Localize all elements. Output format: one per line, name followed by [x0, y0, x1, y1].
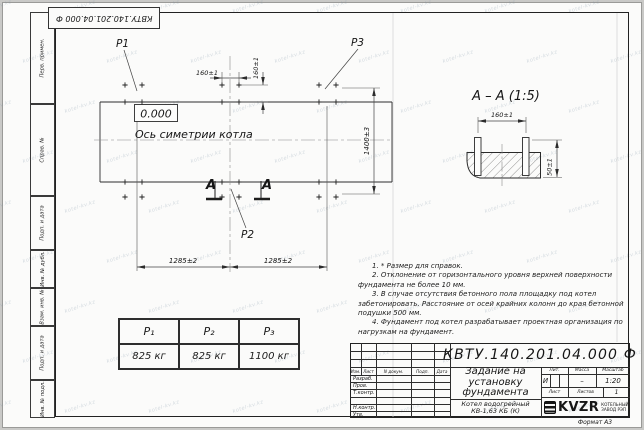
sheet-label: Лист [541, 387, 568, 397]
drawing-sheet-stage: kotel-kv.kzkotel-kv.kzkotel-kv.kzkotel-k… [0, 0, 644, 430]
load-table-value: 1100 кг [239, 344, 299, 369]
note-item: 2. Отклонение от горизонтального уровня … [358, 271, 632, 290]
scale-value: 1:20 [596, 374, 630, 387]
plan-view: 0.000 Ось симетрии котла P1 P3 P2 1285±2… [94, 37, 392, 272]
signature-row-extra [351, 397, 376, 404]
title-block-line [434, 343, 435, 418]
load-table-header: P₁ [119, 319, 179, 344]
title-block-line [376, 343, 377, 418]
signature-row-razrab: Разраб. [351, 375, 376, 382]
dim-bolt-h: 160±1 [196, 69, 218, 77]
section-letter-left: А [205, 178, 216, 193]
scale-label: Масштаб [596, 367, 630, 374]
section-title: А – А (1:5) [471, 89, 540, 104]
load-table-header: P₂ [179, 319, 239, 344]
product-name: Котел водогрейный КВ-1,63 КБ (К) [451, 399, 540, 417]
axis-of-symmetry-label: Ось симетрии котла [135, 128, 253, 141]
section-letter-right: А [261, 178, 272, 193]
sheets-value: 1 [603, 387, 630, 397]
note-item: 1. * Размер для справок. [358, 262, 632, 271]
mass-value: – [568, 374, 596, 387]
doc-title: Задание на установку фундамента [451, 368, 540, 398]
change-header-izm: Изм. [350, 367, 361, 375]
dim-bolt-spacing: 160±1 [491, 111, 513, 119]
load-table: P₁ P₂ P₃ 825 кг 825 кг 1100 кг [118, 318, 300, 370]
dimension-lines [137, 72, 374, 267]
dim-span-left: 1285±2 [169, 257, 198, 265]
p1-label: P1 [116, 38, 129, 50]
section-view: А – А (1:5) 160±1 50±1 [467, 89, 562, 186]
anchor-bolt-left [475, 138, 482, 176]
p3-label: P3 [351, 37, 364, 49]
p2-label: P2 [241, 229, 254, 241]
kvzr-logo-icon [544, 401, 556, 414]
title-block-line [350, 351, 450, 352]
anchor-bolt-right [523, 138, 530, 176]
logo-caption-line2: ЗАВОД РЭП [601, 407, 628, 412]
title-block-line [350, 359, 450, 360]
note-item: 4. Фундамент под котел разрабатывает про… [358, 318, 632, 337]
change-header-podp: Подп. [411, 367, 434, 375]
load-table-value: 825 кг [179, 344, 239, 369]
note-item: 3. В случае отсутствия бетонного пола пл… [358, 290, 632, 318]
signature-row-nkontr: Н.контр. [351, 404, 376, 411]
mass-label: Масса [568, 367, 596, 374]
load-table-value: 825 кг [119, 344, 179, 369]
change-header-ndok: N докум. [376, 367, 411, 375]
logo-caption: КОТЕЛЬНЫЙ ЗАВОД РЭП [601, 402, 628, 412]
signature-row-tkontr: Т.контр. [351, 389, 376, 397]
logo-text: KVZR [558, 400, 599, 415]
signature-row-utv: Утв. [351, 411, 376, 418]
elevation-mark: 0.000 [140, 108, 172, 121]
change-header-data: Дата [434, 367, 450, 375]
dim-bolt-v: 160±1 [252, 57, 260, 79]
sheets-label: Листов [568, 387, 603, 397]
dim-protrusion: 50±1 [546, 158, 554, 176]
lit-value: И [541, 374, 550, 387]
lit-label: Лит. [541, 367, 568, 374]
doc-number: КВТУ.140.201.04.000 Ф [452, 344, 628, 366]
change-header-list: Лист [361, 367, 376, 375]
title-block-line [550, 374, 551, 387]
notes: 1. * Размер для справок. 2. Отклонение о… [358, 262, 632, 337]
dim-span-right: 1285±2 [264, 257, 293, 265]
logo-cell: KVZR КОТЕЛЬНЫЙ ЗАВОД РЭП [542, 397, 629, 417]
load-table-header: P₃ [239, 319, 299, 344]
title-block-line [559, 374, 560, 387]
signature-row-prov: Пров. [351, 382, 376, 389]
dim-width: 1400±3 [363, 127, 371, 155]
format-note: Формат А3 [560, 419, 630, 426]
title-block-line [411, 343, 412, 418]
